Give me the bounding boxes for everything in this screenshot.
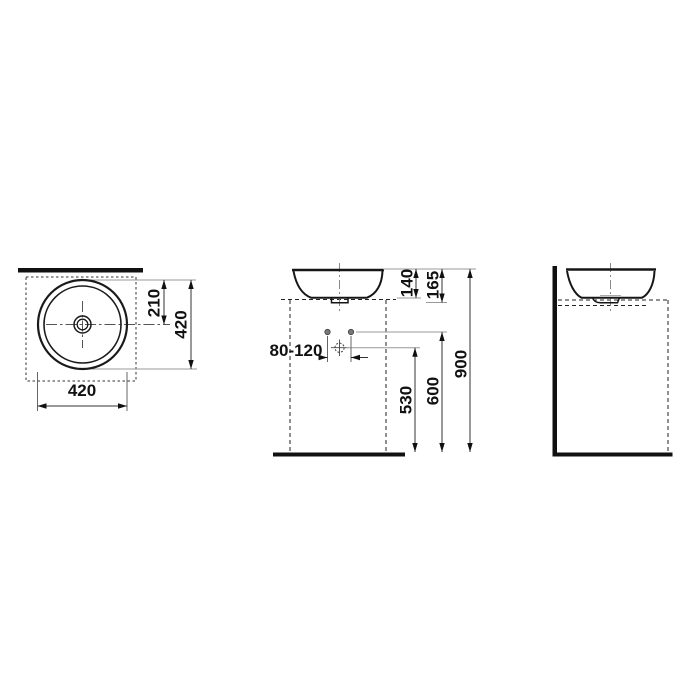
arrow-up: [188, 280, 193, 289]
front-view: 80-120 140 165 900 600: [270, 263, 476, 457]
dim-width-420: 420: [38, 372, 128, 411]
dim-label-210: 210: [145, 289, 164, 317]
dim-center-offset-210: 210: [145, 280, 167, 325]
arrow-down: [467, 443, 472, 452]
arrow-up: [161, 280, 166, 289]
dim-label-420-horizontal: 420: [68, 381, 96, 400]
arrow-down: [412, 443, 417, 452]
arrow-up: [412, 348, 417, 357]
wall-section-bar: [18, 268, 143, 273]
arrow-up: [467, 269, 472, 278]
dim-label-900: 900: [452, 350, 471, 378]
dim-height-900: 900: [452, 269, 473, 452]
fixing-hole-right: [348, 329, 353, 334]
arrow-down: [188, 360, 193, 369]
arrow-left: [38, 403, 47, 408]
washbasin-technical-drawing: 210 420 420: [0, 0, 700, 700]
top-view: 210 420 420: [18, 268, 197, 411]
drain-crosshair: [331, 340, 348, 357]
dim-label-140: 140: [398, 269, 417, 297]
bowl-body-outline: [294, 271, 383, 298]
dim-height-165: 165: [424, 269, 445, 303]
dim-height-530: 530: [397, 348, 418, 452]
dim-depth-420: 420: [172, 280, 194, 369]
dim-label-420-vertical: 420: [172, 310, 191, 338]
dim-height-140: 140: [398, 269, 419, 298]
technical-drawing-page: 210 420 420: [0, 0, 700, 700]
wall-section-bar-side: [553, 266, 558, 457]
arrow-right: [118, 403, 127, 408]
floor-section-bar: [273, 453, 405, 457]
dim-label-530: 530: [397, 386, 416, 414]
dim-label-80-120: 80-120: [270, 341, 323, 360]
floor-section-bar-side: [553, 453, 673, 457]
side-view: [553, 263, 673, 457]
arrow-down: [439, 443, 444, 452]
dim-height-600: 600: [424, 332, 445, 452]
dim-label-165: 165: [424, 271, 443, 299]
arrow-left: [351, 355, 360, 360]
fixing-hole-left: [325, 329, 330, 334]
arrow-up: [439, 332, 444, 341]
dim-label-600: 600: [424, 377, 443, 405]
dim-tap-range-80-120: 80-120: [270, 336, 368, 362]
